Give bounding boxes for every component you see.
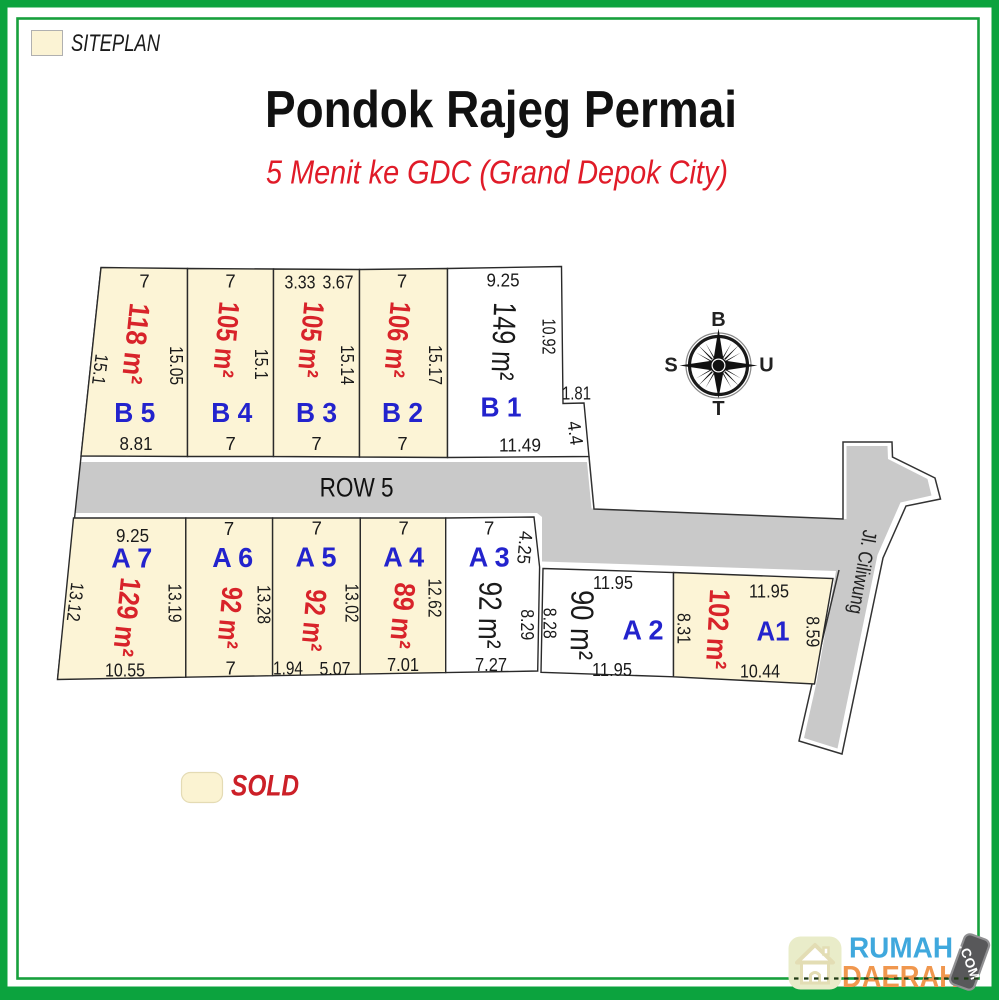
- svg-text:92 m²: 92 m²: [210, 585, 247, 650]
- svg-text:7: 7: [225, 271, 235, 292]
- svg-text:5 Menit ke GDC (Grand Depok Ci: 5 Menit ke GDC (Grand Depok City): [266, 154, 728, 191]
- svg-text:A 4: A 4: [383, 541, 424, 572]
- svg-text:9.25: 9.25: [487, 269, 520, 290]
- svg-text:SITEPLAN: SITEPLAN: [71, 30, 161, 57]
- svg-text:A 5: A 5: [296, 542, 337, 573]
- svg-text:8.81: 8.81: [120, 433, 153, 454]
- svg-text:11.95: 11.95: [592, 659, 632, 680]
- svg-text:7: 7: [311, 433, 321, 454]
- svg-text:90 m²: 90 m²: [563, 590, 600, 661]
- svg-text:B 5: B 5: [114, 397, 155, 428]
- svg-text:11.95: 11.95: [749, 580, 789, 601]
- svg-text:1.94: 1.94: [273, 658, 303, 679]
- svg-text:5.07: 5.07: [320, 658, 351, 679]
- svg-text:A 7: A 7: [111, 543, 152, 574]
- svg-text:B 1: B 1: [481, 392, 522, 423]
- svg-text:3.67: 3.67: [323, 272, 354, 293]
- svg-text:4.4: 4.4: [563, 420, 587, 447]
- svg-text:7: 7: [397, 433, 407, 454]
- svg-text:S: S: [664, 355, 677, 377]
- svg-text:15.1: 15.1: [251, 349, 272, 380]
- svg-text:10.92: 10.92: [538, 319, 559, 355]
- svg-text:7: 7: [399, 518, 409, 539]
- svg-text:105 m²: 105 m²: [206, 300, 245, 379]
- svg-text:7: 7: [224, 518, 234, 539]
- svg-text:149 m²: 149 m²: [484, 302, 523, 381]
- svg-text:102 m²: 102 m²: [699, 588, 735, 670]
- svg-text:10.44: 10.44: [740, 661, 780, 682]
- svg-text:B 3: B 3: [296, 397, 337, 428]
- svg-text:4.25: 4.25: [513, 530, 537, 565]
- svg-text:A 6: A 6: [212, 542, 253, 573]
- svg-text:7: 7: [139, 271, 149, 292]
- svg-text:8.59: 8.59: [803, 616, 824, 647]
- svg-text:12.62: 12.62: [425, 579, 446, 618]
- svg-text:A 2: A 2: [623, 615, 664, 646]
- svg-text:15.05: 15.05: [166, 346, 187, 385]
- svg-text:15.17: 15.17: [425, 345, 446, 385]
- svg-text:ROW 5: ROW 5: [320, 473, 394, 503]
- svg-text:106 m²: 106 m²: [377, 300, 416, 379]
- svg-text:7.27: 7.27: [475, 654, 507, 675]
- svg-text:92 m²: 92 m²: [294, 588, 331, 653]
- svg-text:7: 7: [312, 518, 322, 539]
- svg-text:3.33: 3.33: [285, 272, 316, 293]
- svg-text:10.55: 10.55: [105, 660, 145, 681]
- svg-text:7: 7: [225, 433, 235, 454]
- svg-text:89 m²: 89 m²: [383, 581, 421, 650]
- svg-text:A 3: A 3: [469, 541, 510, 572]
- svg-text:B: B: [711, 309, 725, 331]
- svg-text:U: U: [759, 355, 773, 377]
- svg-text:105 m²: 105 m²: [291, 300, 330, 379]
- svg-text:92 m²: 92 m²: [471, 581, 508, 649]
- svg-text:8.31: 8.31: [674, 613, 695, 644]
- svg-text:DAERAH: DAERAH: [842, 959, 959, 994]
- svg-text:13.02: 13.02: [341, 584, 362, 623]
- svg-text:15.14: 15.14: [337, 345, 358, 385]
- svg-text:A1: A1: [757, 616, 790, 647]
- svg-text:B 2: B 2: [382, 397, 423, 428]
- svg-text:7: 7: [397, 271, 407, 292]
- svg-text:7.01: 7.01: [387, 654, 419, 675]
- svg-text:13.28: 13.28: [254, 585, 275, 624]
- svg-text:8.29: 8.29: [517, 609, 538, 640]
- svg-text:1.81: 1.81: [562, 383, 591, 404]
- svg-text:T: T: [712, 398, 724, 420]
- svg-text:7: 7: [484, 518, 494, 539]
- svg-text:SOLD: SOLD: [231, 770, 299, 803]
- svg-text:11.49: 11.49: [499, 435, 541, 456]
- svg-text:B 4: B 4: [211, 397, 252, 428]
- svg-text:7: 7: [225, 658, 235, 679]
- svg-text:13.19: 13.19: [165, 584, 186, 623]
- svg-text:Pondok Rajeg Permai: Pondok Rajeg Permai: [265, 81, 737, 139]
- svg-text:8.28: 8.28: [540, 608, 561, 639]
- svg-text:15.1: 15.1: [88, 353, 113, 386]
